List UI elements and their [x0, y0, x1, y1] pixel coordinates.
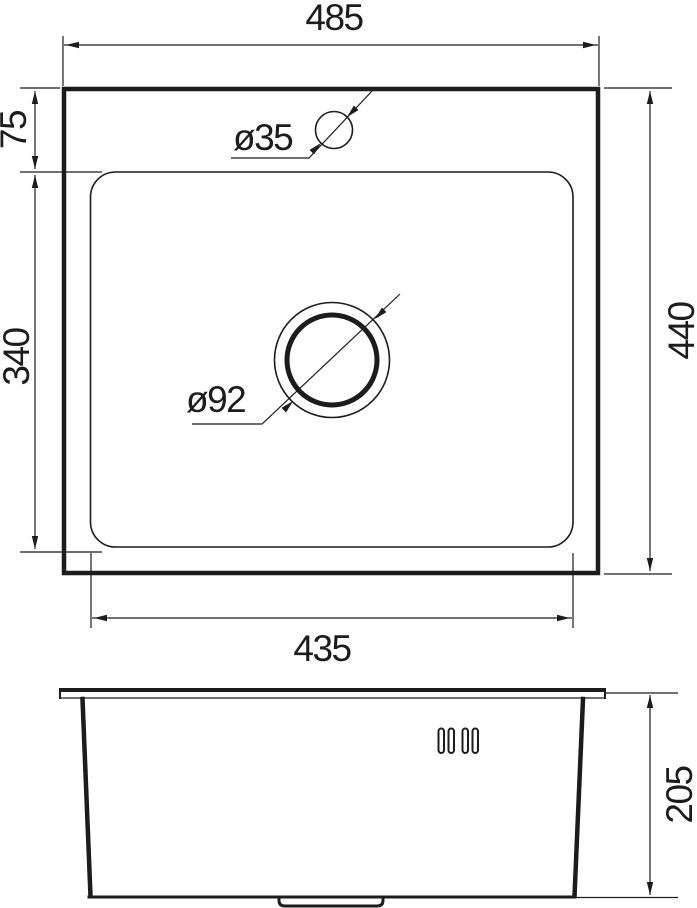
drain-fitting: [279, 898, 383, 907]
side-view: 205: [60, 688, 697, 906]
dim-faucet-offset: 75: [0, 88, 102, 172]
arrowhead-icon: [647, 91, 653, 104]
arrowhead-icon: [32, 175, 38, 188]
arrowhead-icon: [32, 91, 38, 104]
sink-rim: [60, 688, 605, 699]
height-label: 205: [659, 765, 697, 823]
overflow-slot: [473, 729, 479, 754]
arrowhead-icon: [557, 615, 570, 621]
arrowhead-icon: [647, 882, 653, 895]
faucet-hole-label: ø35: [233, 117, 293, 158]
sink-bowl-edge: [91, 172, 574, 547]
overflow-slot: [439, 729, 445, 754]
overall-depth-label: 440: [661, 301, 697, 359]
arrowhead-icon: [94, 615, 107, 621]
bowl-right-wall: [575, 699, 584, 896]
dim-bowl-depth: 340: [0, 175, 102, 552]
arrowhead-icon: [373, 308, 387, 322]
bowl-width-label: 435: [293, 628, 351, 669]
dim-bowl-width: 435: [91, 553, 573, 669]
bowl-depth-label: 340: [0, 327, 37, 385]
arrowhead-icon: [647, 558, 653, 571]
dim-overall-depth: 440: [604, 88, 697, 574]
top-view: ø35 ø92 485 75: [0, 0, 697, 669]
overflow-slots-icon: [439, 729, 479, 754]
sink-outer-edge: [64, 89, 598, 573]
drain-hole-label: ø92: [186, 379, 245, 420]
arrowhead-icon: [32, 156, 38, 169]
arrowhead-icon: [32, 536, 38, 549]
arrowhead-icon: [583, 42, 596, 48]
overflow-slot: [463, 729, 469, 754]
overflow-slot: [449, 729, 455, 754]
overall-width-label: 485: [305, 0, 363, 38]
dim-overall-width: 485: [63, 0, 599, 86]
arrowhead-icon: [282, 399, 296, 413]
technical-drawing-sink: ø35 ø92 485 75: [0, 0, 697, 908]
arrowhead-icon: [647, 695, 653, 708]
bowl-left-wall: [83, 699, 91, 896]
dim-height: 205: [576, 693, 697, 898]
arrowhead-icon: [66, 42, 79, 48]
faucet-offset-label: 75: [0, 110, 34, 149]
